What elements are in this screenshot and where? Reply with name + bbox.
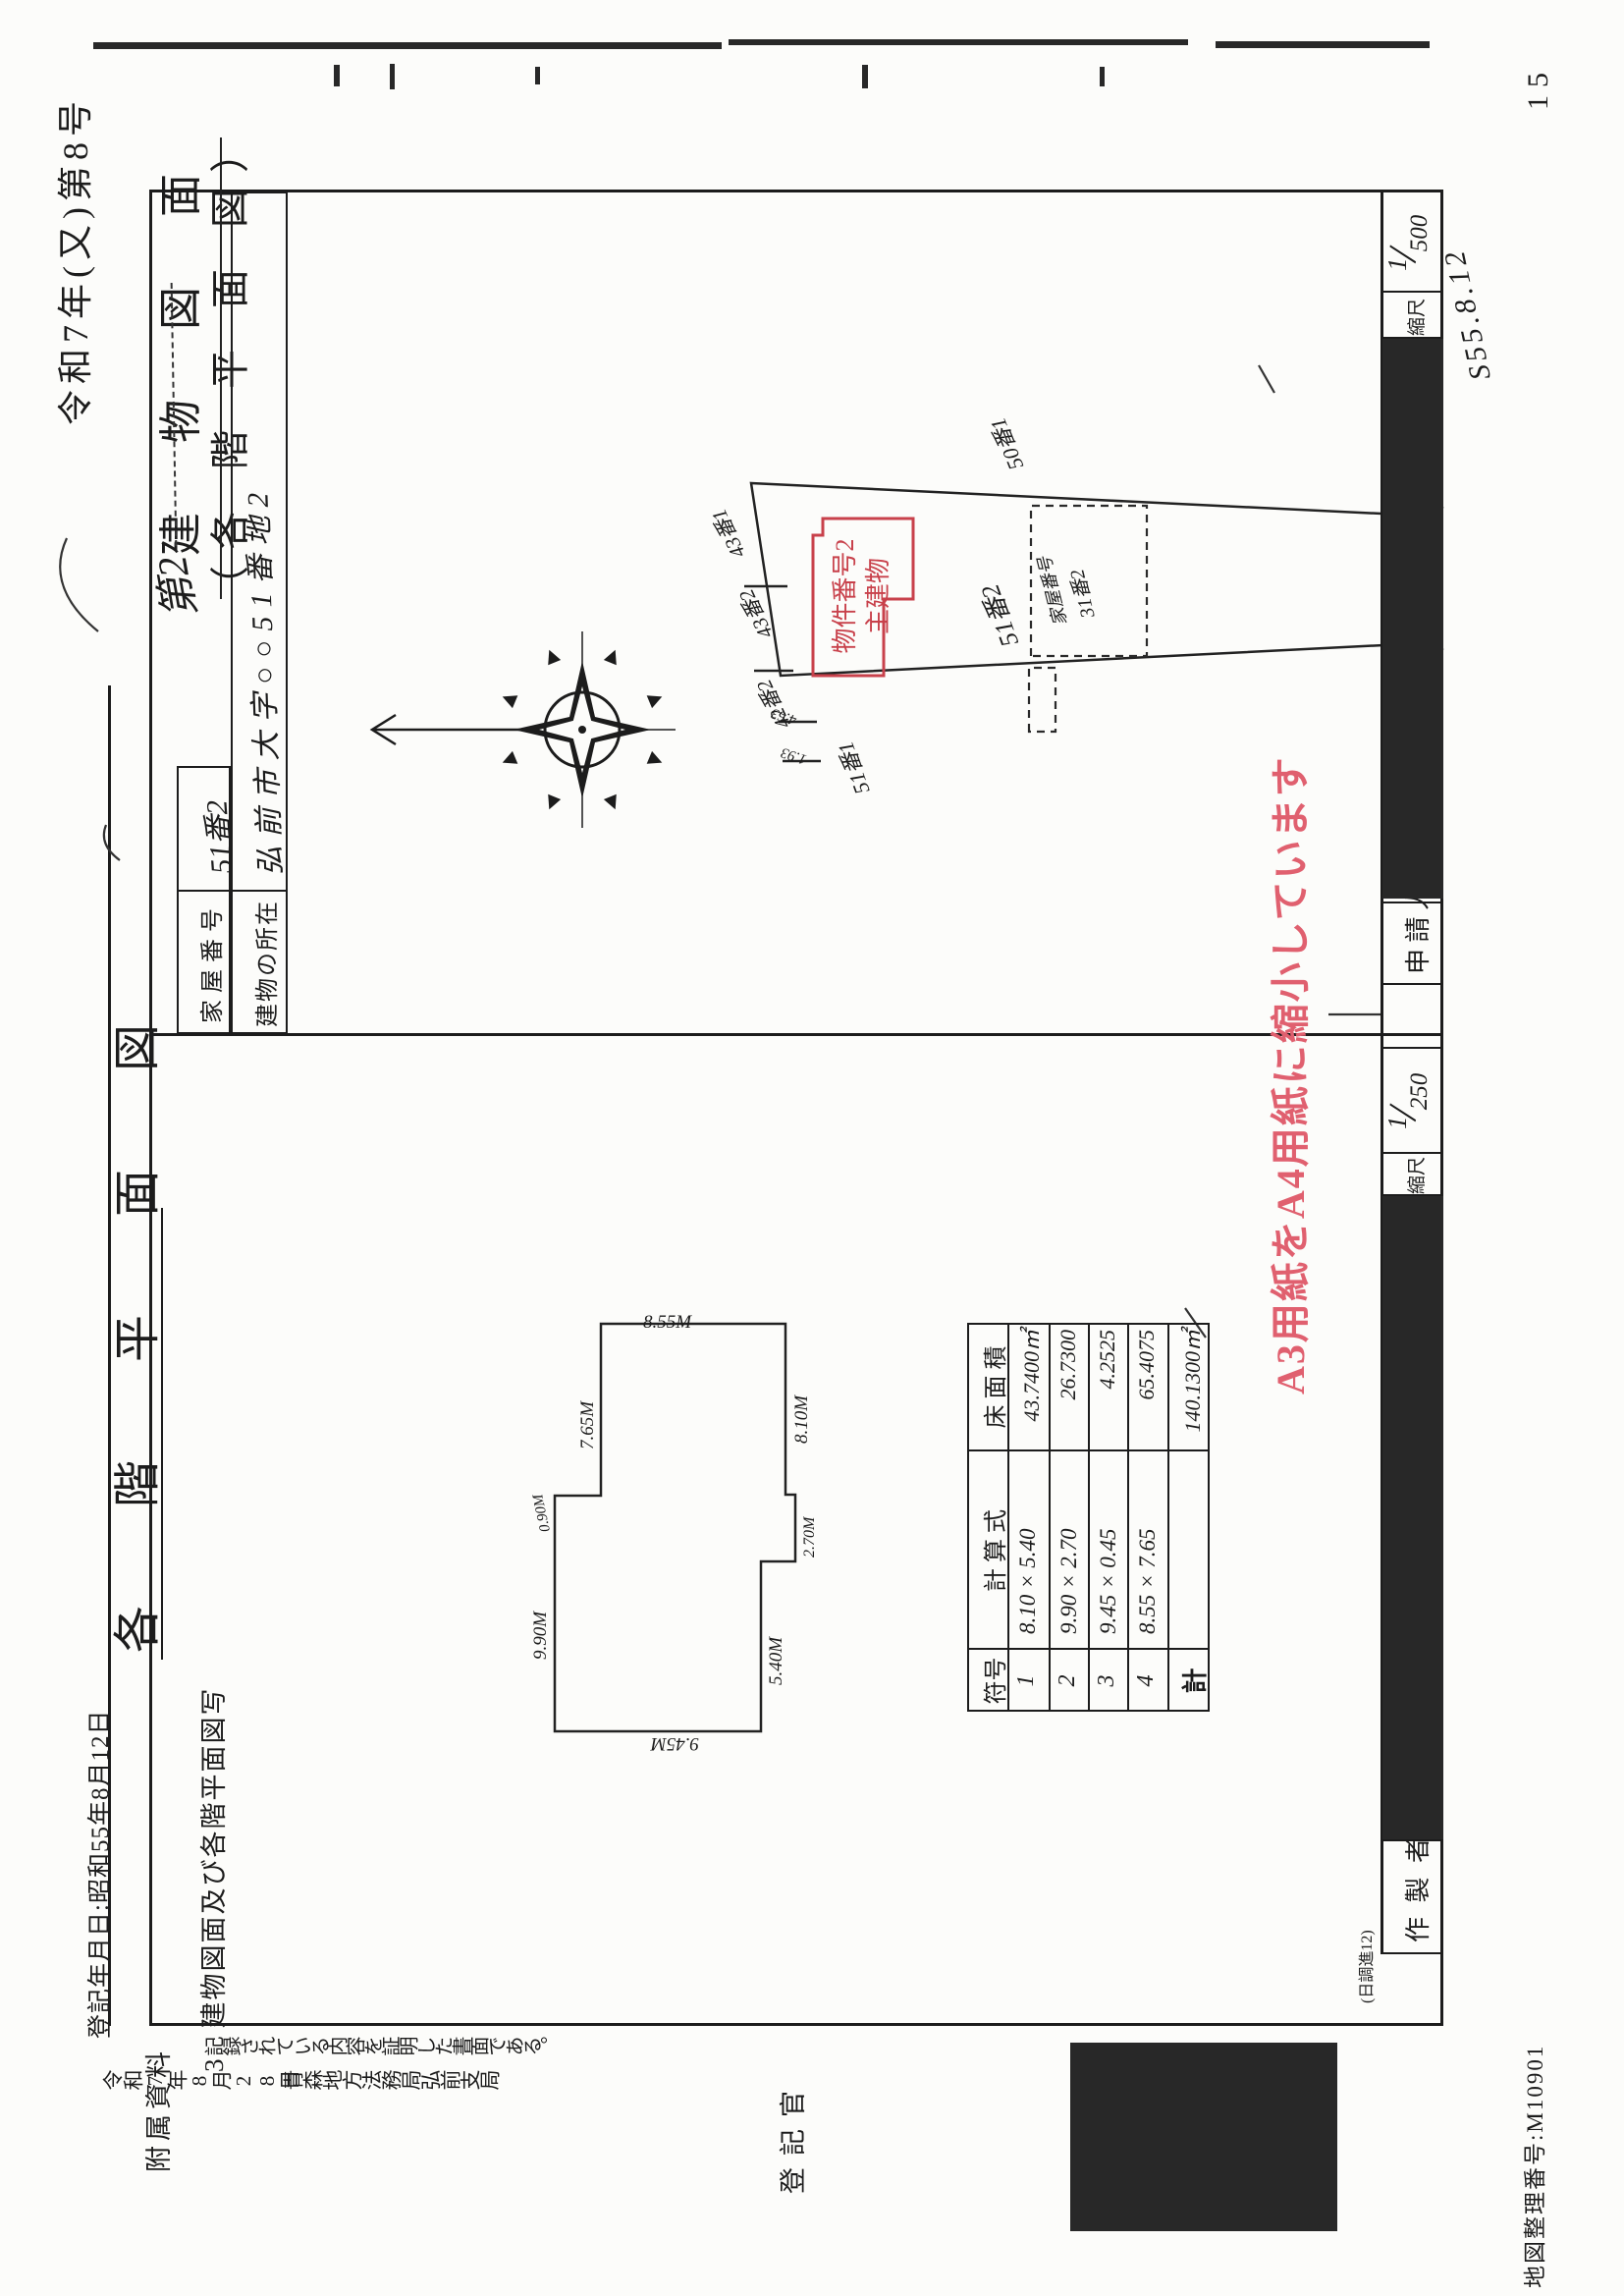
redaction-bar-maker [1382, 1196, 1443, 1839]
redaction-bar-applicant [1382, 339, 1443, 899]
scale-value-left: 1/250 [1386, 1073, 1434, 1129]
scan-noise-streak [93, 42, 722, 49]
calc-total-label: 計 [1175, 1650, 1212, 1712]
dim-right: 8.55M [643, 1312, 691, 1334]
calc-header-menseki: 床 面 積 [976, 1323, 1010, 1451]
certification-text: 記録されている内容を証明した書面である。 [204, 2034, 538, 2062]
dim-left: 9.45M [651, 1732, 699, 1754]
attachment-value: 3 建物図面及び各階平面図写 [192, 1687, 231, 2073]
scale-right-den: 500 [1406, 215, 1434, 252]
case-number: 令和7年(又)第8号 [47, 95, 98, 425]
registration-date-line: 登記年月日:昭和55年8月12日 [81, 1710, 116, 2039]
cell-line-e [1380, 1047, 1443, 1049]
calc-row4-area: 65.4075 [1134, 1330, 1160, 1451]
scale-value-right: 1/500 [1386, 215, 1434, 271]
scale-label-right: 縮尺 [1402, 299, 1429, 336]
certification-office: 青森地方法務局弘前支局 [283, 2066, 489, 2096]
calc-row-line-1 [1049, 1323, 1051, 1712]
form-note: (日調進12) [1353, 1930, 1377, 2003]
calc-row3-no: 3 [1094, 1650, 1120, 1712]
scan-noise-dash [334, 65, 340, 86]
calc-row2-area: 26.7300 [1056, 1330, 1081, 1451]
cell-line-f [1380, 983, 1443, 985]
calc-row3-area: 4.2525 [1095, 1330, 1120, 1451]
dim-top-left: 9.90M [530, 1612, 552, 1660]
calc-row1-no: 1 [1013, 1650, 1040, 1712]
map-management-number: 地図整理番号:M10901 [1516, 2045, 1549, 2288]
dim-bottom-left: 5.40M [766, 1637, 787, 1685]
title-paren-strike [220, 137, 222, 599]
calc-row1-area: 43.7400㎡ [1014, 1330, 1046, 1451]
main-building-label-2: 主建物 [858, 522, 894, 670]
landscape-document: 令和7年(又)第8号 第2 建 物 図 面 （各 階 平 面 図） 各 階 平 … [0, 0, 1624, 2296]
cell-line-a [1380, 1952, 1443, 1954]
calc-row4-formula: 8.55 × 7.65 [1135, 1528, 1161, 1634]
calc-row-line-3 [1127, 1323, 1129, 1712]
info-value-kaoku: 51番2 [191, 799, 240, 876]
scan-noise-streak [1216, 41, 1430, 48]
scan-noise-dash [862, 65, 868, 88]
scan-noise-dash [390, 64, 395, 89]
calc-row2-formula: 9.90 × 2.70 [1056, 1528, 1082, 1634]
calc-row-line-2 [1088, 1323, 1090, 1712]
dim-bottom-right: 8.10M [791, 1395, 813, 1444]
cell-line-d [1380, 1152, 1443, 1154]
cell-line-i [1380, 291, 1443, 293]
section-heading-underline [161, 1208, 163, 1660]
scale-label-left: 縮尺 [1402, 1157, 1429, 1194]
scanned-page: 令和7年(又)第8号 第2 建 物 図 面 （各 階 平 面 図） 各 階 平 … [0, 0, 1624, 2296]
info-table-label-divider [177, 890, 288, 892]
calc-header-shiki: 計 算 式 [976, 1451, 1010, 1650]
info-label-shozai: 建物の所在 [247, 900, 282, 1027]
scan-noise-dash [535, 67, 540, 84]
certification-date: 令和7年8月28日 [102, 2066, 249, 2096]
registrar-seal-redaction [1070, 2043, 1337, 2231]
floor-plan-outline [555, 1324, 795, 1731]
page-number: 15 [1522, 65, 1555, 110]
calc-row1-formula: 8.10 × 5.40 [1015, 1528, 1041, 1634]
section-heading: 各 階 平 面 図 [98, 981, 167, 1653]
scan-noise-dash [1100, 67, 1105, 86]
a3-a4-reduction-stamp: A3用紙をA4用紙に縮小しています [1259, 755, 1316, 1394]
scan-noise-streak [729, 39, 1188, 45]
main-building-label-1: 物件番号2 [825, 522, 861, 670]
calc-row-line-4 [1167, 1323, 1169, 1712]
maker-label: 作 製 者 [1398, 1833, 1435, 1942]
calc-header-fugo: 符号 [976, 1650, 1010, 1712]
info-label-kaoku: 家屋番号 [192, 902, 227, 1023]
scale-left-den: 250 [1406, 1073, 1434, 1111]
calc-row4-no: 4 [1133, 1650, 1160, 1712]
dim-jog: 2.70M [801, 1517, 819, 1558]
dim-top-right: 7.65M [577, 1401, 599, 1449]
compass-icon [372, 631, 676, 828]
registrar-label: 登記官 [772, 2079, 810, 2194]
calc-row2-no: 2 [1055, 1650, 1081, 1712]
calc-row3-formula: 9.45 × 0.45 [1096, 1528, 1121, 1634]
calc-total-value: 140.1300㎡ [1175, 1330, 1207, 1451]
